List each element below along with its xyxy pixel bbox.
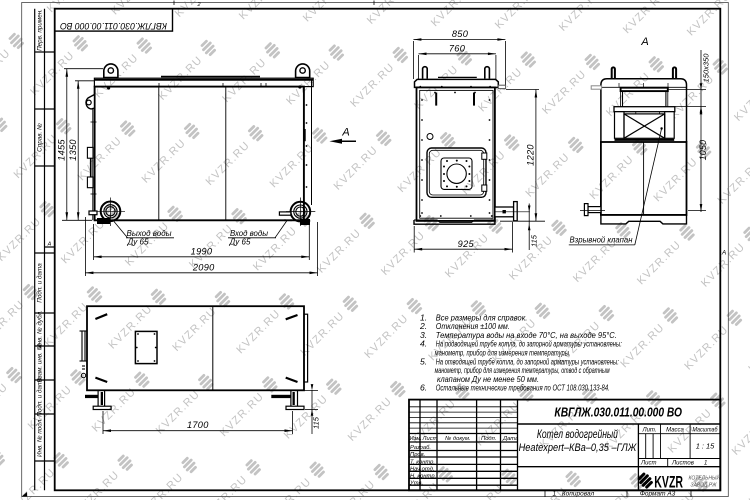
svg-text:KVZR: KVZR [654,473,683,492]
svg-text:Формат А3: Формат А3 [640,491,676,498]
svg-text:КОТЕЛЬНЫЙ: КОТЕЛЬНЫЙ [689,474,721,482]
svg-text:1220: 1220 [526,144,536,166]
svg-text:1: 1 [704,461,707,467]
svg-text:№ докум.: № докум. [445,436,471,442]
svg-text:Взрывной клапан: Взрывной клапан [570,235,633,245]
svg-text:Взам. инв. №: Взам. инв. № [37,343,44,382]
svg-text:Нач.отд.: Нач.отд. [410,467,434,473]
svg-text:1: 1 [553,491,557,498]
svg-text:Пров.: Пров. [410,452,425,458]
svg-text:Лит.: Лит. [641,428,656,434]
svg-text:ЗАВОД РЖ: ЗАВОД РЖ [691,483,717,489]
svg-text:1990: 1990 [191,247,213,257]
svg-text:Подп.: Подп. [481,436,496,442]
svg-text:Изм.: Изм. [410,436,422,442]
svg-text:115: 115 [530,234,539,247]
svg-text:5.: 5. [420,356,427,366]
svg-text:Масса: Масса [666,428,684,434]
svg-text:760: 760 [449,43,466,53]
svg-text:Н. контр.: Н. контр. [410,474,436,480]
svg-text:А: А [47,242,52,248]
svg-text:Копировал: Копировал [562,491,595,498]
svg-text:Перв. примен.: Перв. примен. [37,9,44,51]
svg-text:150х350: 150х350 [702,53,711,83]
svg-text:4.: 4. [420,339,427,349]
svg-text:Подп. и дата: Подп. и дата [36,263,44,303]
svg-text:Лист: Лист [640,461,656,467]
svg-text:Инв. № дубл.: Инв. № дубл. [36,310,44,349]
svg-text:1050: 1050 [698,140,708,161]
svg-text:Утв.: Утв. [409,481,423,487]
svg-text:Инв. № подл.: Инв. № подл. [36,418,44,457]
svg-text:Остальные технические требован: Остальные технические требования по ОСТ … [436,383,610,393]
svg-text:1350: 1350 [68,139,78,161]
svg-text:Ду 65: Ду 65 [127,237,149,246]
svg-text:Подп. и дата: Подп. и дата [36,377,44,417]
svg-text:2090: 2090 [192,262,215,272]
svg-text:Дата: Дата [502,436,519,442]
svg-text:КВГЛЖ.030.011.00.000 ВО: КВГЛЖ.030.011.00.000 ВО [60,21,167,31]
svg-text:1455: 1455 [57,139,67,161]
svg-text:А: А [721,250,726,257]
svg-text:115: 115 [312,416,321,429]
svg-text:6.: 6. [420,383,427,393]
svg-text:Heatexpert–КВа–0,35 –ГЛЖ: Heatexpert–КВа–0,35 –ГЛЖ [519,442,637,454]
svg-text:КВГЛЖ.030.011.00.000 ВО: КВГЛЖ.030.011.00.000 ВО [554,406,682,420]
svg-text:850: 850 [452,29,469,39]
svg-text:Т. контр.: Т. контр. [410,460,435,466]
svg-text:Масштаб: Масштаб [693,428,719,434]
svg-text:Справ. №: Справ. № [37,123,44,152]
svg-text:Разраб.: Разраб. [410,445,431,451]
svg-text:925: 925 [458,239,475,249]
svg-text:Листов: Листов [671,461,694,467]
svg-text:Ду 65: Ду 65 [229,237,251,246]
svg-text:2: 2 [196,2,200,8]
svg-text:А: А [341,127,349,139]
svg-text:1700: 1700 [187,420,209,430]
svg-text:1 : 15: 1 : 15 [696,442,715,451]
svg-text:Лист: Лист [422,436,438,442]
svg-text:А: А [640,36,648,48]
svg-text:Котел водогрейный: Котел водогрейный [537,429,618,441]
